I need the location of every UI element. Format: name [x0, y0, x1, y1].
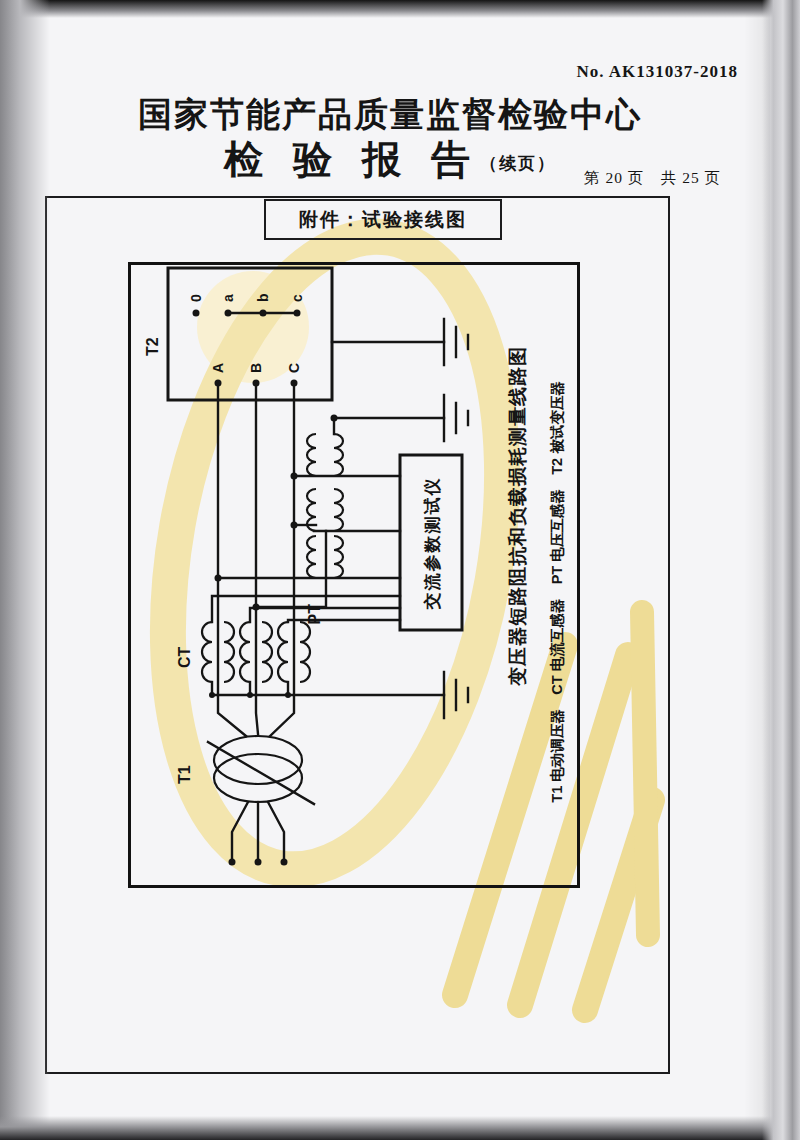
org-title: 国家节能产品质量监督检验中心 [0, 92, 780, 138]
label-pt: PT [306, 604, 323, 625]
tester-box: 交流参数测试仪 [400, 455, 462, 630]
scan-edge-top [0, 0, 800, 18]
label-t1: T1 [176, 765, 193, 784]
report-title: 检验报告 [224, 138, 500, 181]
diagram-caption-legend: T1 电动调压器 CT 电流互感器 PT 电压互感器 T2 被试变压器 [549, 381, 565, 803]
phase-lines [218, 383, 294, 736]
current-transformers-ct: CT [176, 596, 400, 698]
report-title-suffix: （续页） [480, 154, 556, 173]
tester-label: 交流参数测试仪 [423, 477, 442, 611]
test-wiring-diagram: T1 CT [128, 262, 580, 888]
label-ct: CT [176, 646, 193, 668]
scan-edge-right [762, 0, 800, 1140]
ground-symbol-t2 [332, 319, 468, 365]
ground-symbol-pt [334, 395, 468, 441]
variac-t1: T1 [176, 736, 314, 866]
ground-symbol-ct [212, 672, 468, 718]
diagram-caption-title: 变压器短路阻抗和负载损耗测量线路图 [507, 346, 528, 687]
attachment-label-box: 附件：试验接线图 [264, 199, 502, 240]
report-number: No. AK131037-2018 [577, 62, 739, 82]
terminal-B: B [248, 363, 264, 373]
label-t2: T2 [144, 337, 161, 356]
terminal-c: c [289, 294, 305, 302]
terminal-b: b [255, 293, 271, 302]
terminal-A: A [210, 363, 226, 373]
page-number-info: 第 20 页 共 25 页 [584, 168, 721, 189]
transformer-t2-box: A B C 0 a b c T2 [144, 268, 332, 400]
scan-edge-left [0, 0, 50, 1140]
terminal-C: C [286, 363, 302, 373]
scan-edge-bottom [0, 1116, 800, 1140]
scanned-page: No. AK131037-2018 国家节能产品质量监督检验中心 检验报告（续页… [0, 0, 800, 1140]
voltage-transformers-pt: PT [215, 415, 401, 625]
terminal-a: a [220, 294, 236, 302]
terminal-0: 0 [188, 294, 204, 302]
attachment-label: 附件：试验接线图 [299, 207, 467, 233]
